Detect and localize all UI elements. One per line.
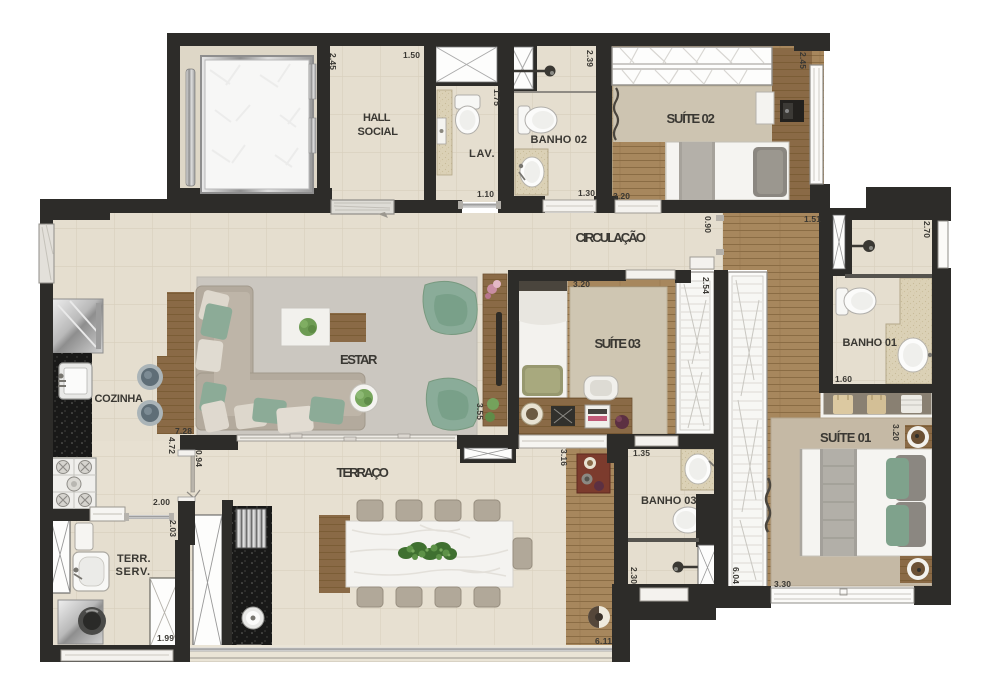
svg-text:1.99: 1.99 — [157, 633, 174, 643]
svg-text:TERRAÇO: TERRAÇO — [337, 465, 390, 480]
svg-text:3.20: 3.20 — [573, 279, 590, 289]
svg-text:1.35: 1.35 — [633, 448, 650, 458]
svg-text:1.75: 1.75 — [492, 89, 502, 106]
svg-text:BANHO 01: BANHO 01 — [843, 337, 898, 349]
svg-text:1.51: 1.51 — [804, 214, 821, 224]
svg-text:3.16: 3.16 — [559, 449, 569, 466]
svg-text:SERV.: SERV. — [116, 566, 151, 578]
svg-text:2.45: 2.45 — [328, 53, 338, 70]
svg-text:CIRCULAÇÃO: CIRCULAÇÃO — [576, 230, 647, 245]
svg-text:HALL: HALL — [363, 112, 391, 124]
svg-text:2.45: 2.45 — [798, 52, 808, 69]
svg-text:COZINHA: COZINHA — [95, 393, 144, 405]
svg-text:2.00: 2.00 — [153, 497, 170, 507]
svg-text:0.94: 0.94 — [194, 450, 204, 467]
svg-text:2.39: 2.39 — [585, 50, 595, 67]
svg-text:0.90: 0.90 — [703, 216, 713, 233]
svg-text:7.28: 7.28 — [175, 426, 192, 436]
svg-text:3.30: 3.30 — [774, 579, 791, 589]
svg-text:6.04: 6.04 — [731, 567, 741, 584]
svg-text:4.72: 4.72 — [167, 437, 177, 454]
svg-text:1.30: 1.30 — [578, 188, 595, 198]
svg-text:3.20: 3.20 — [891, 424, 901, 441]
svg-text:1.60: 1.60 — [835, 374, 852, 384]
svg-text:2.03: 2.03 — [168, 520, 178, 537]
svg-text:BANHO 02: BANHO 02 — [531, 134, 588, 146]
svg-text:2.70: 2.70 — [922, 221, 932, 238]
svg-text:TERR.: TERR. — [117, 553, 151, 565]
svg-text:2.30: 2.30 — [629, 567, 639, 584]
svg-text:BANHO 03: BANHO 03 — [641, 495, 697, 507]
svg-text:1.10: 1.10 — [477, 189, 494, 199]
svg-text:1.50: 1.50 — [403, 50, 420, 60]
svg-text:3.20: 3.20 — [613, 191, 630, 201]
svg-text:ESTAR: ESTAR — [340, 352, 378, 367]
svg-text:LAV.: LAV. — [469, 148, 495, 160]
svg-text:SUÍTE 03: SUÍTE 03 — [595, 336, 642, 351]
svg-text:2.54: 2.54 — [701, 277, 711, 294]
svg-text:SUÍTE 02: SUÍTE 02 — [667, 111, 716, 126]
svg-text:SUÍTE 01: SUÍTE 01 — [820, 430, 872, 445]
svg-text:SOCIAL: SOCIAL — [358, 126, 399, 138]
svg-text:3.55: 3.55 — [475, 403, 485, 420]
svg-text:6.11: 6.11 — [595, 636, 612, 646]
